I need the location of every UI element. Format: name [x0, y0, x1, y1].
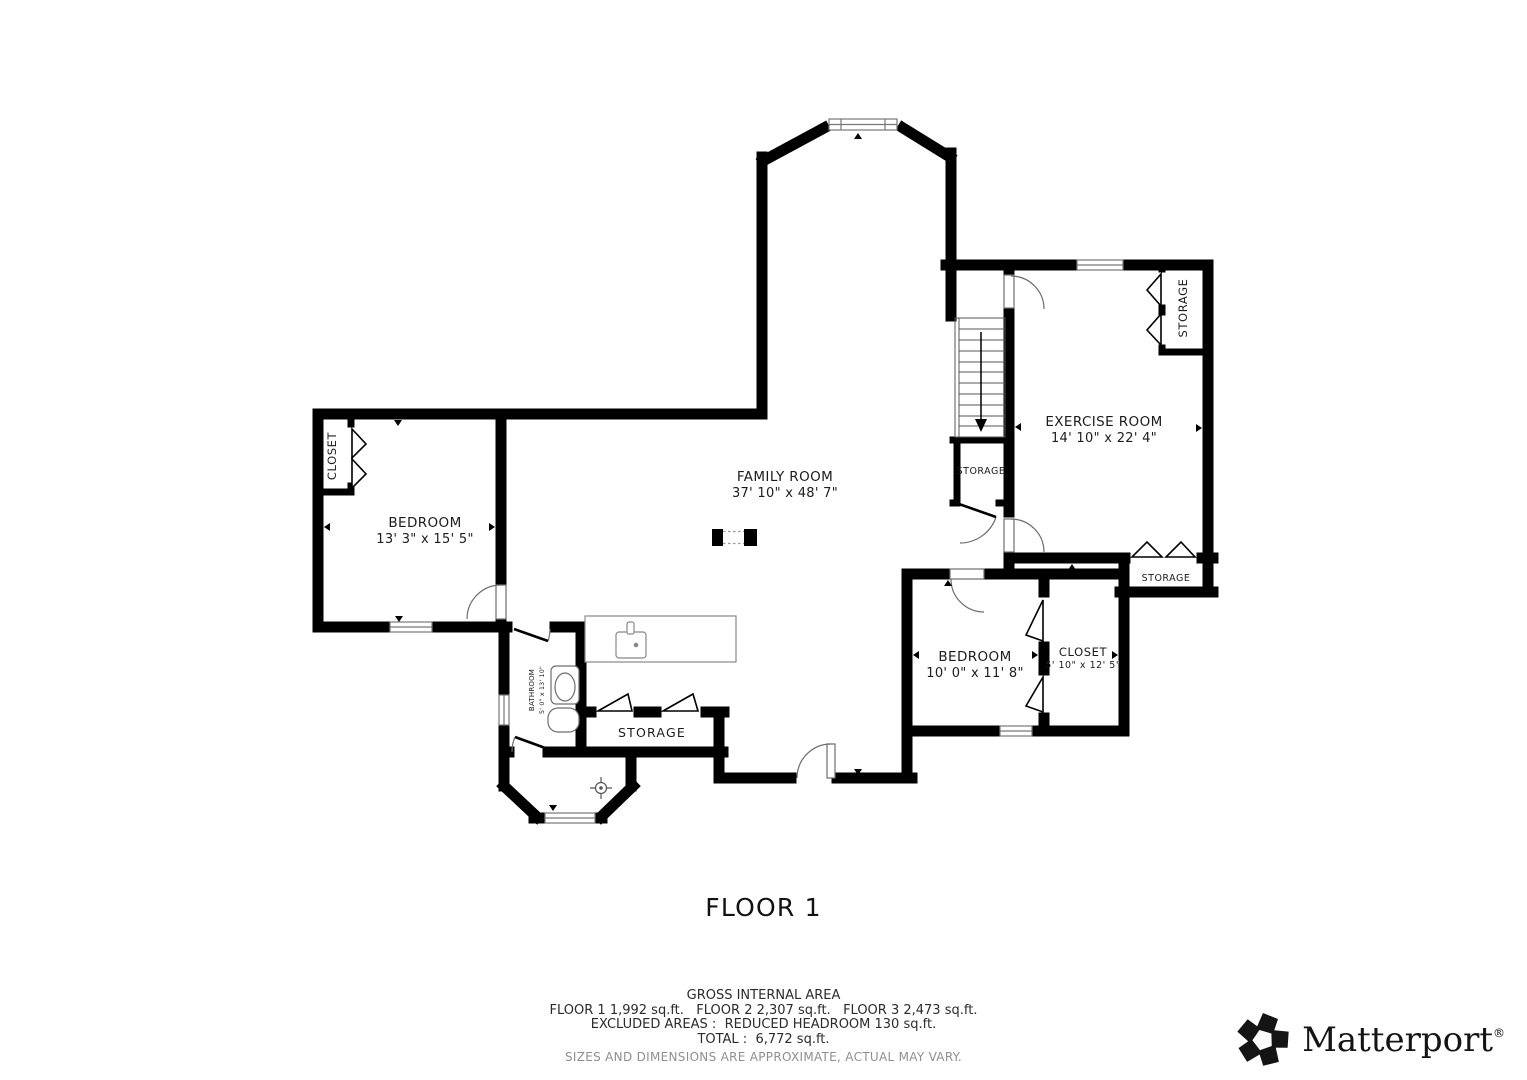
toilet-bowl — [555, 673, 575, 701]
door-leaf-storage-under-stairs — [959, 504, 996, 517]
window-bay-top — [829, 119, 897, 130]
bifold-storage-top-right-1 — [1147, 274, 1161, 306]
matterport-wordmark: Matterport® — [1302, 1023, 1505, 1057]
room-label-closet-right: CLOSET — [1059, 645, 1108, 659]
bifold-closet-right-1 — [1026, 600, 1043, 641]
door-leaf-family-bottom — [827, 744, 835, 778]
door-leaf-bedroom-left — [496, 585, 506, 619]
window-foyer — [545, 813, 595, 823]
room-label-bedroom-right: BEDROOM — [938, 649, 1011, 665]
matterport-logo: Matterport® — [1235, 1012, 1505, 1068]
bifold-storage-top-right-2 — [1147, 314, 1161, 345]
room-label-bedroom-left: BEDROOM — [388, 515, 461, 531]
floor-title: FLOOR 1 — [0, 893, 1527, 922]
bifold-closet-left-2 — [352, 459, 366, 488]
door-leaf-bedroom-right — [950, 569, 984, 579]
kitchen-sink — [616, 632, 646, 658]
window-bathroom — [499, 695, 509, 725]
bath-sink — [548, 708, 579, 732]
room-label-family-room: FAMILY ROOM — [737, 469, 833, 485]
door-leaf-exercise-bottom — [1004, 519, 1014, 552]
room-dims-family-room: 37' 10" x 48' 7" — [732, 486, 838, 501]
door-knob-icon — [590, 777, 612, 799]
door-leaf-exercise-top — [1004, 275, 1014, 308]
room-dims-bathroom: 5' 0" x 13' 10" — [539, 666, 546, 714]
room-label-exercise-room: EXERCISE ROOM — [1045, 414, 1162, 430]
bifold-closet-right-2 — [1026, 677, 1043, 712]
bifold-storage-hall-2 — [663, 694, 698, 711]
window-bedroom-right — [1000, 726, 1032, 736]
door-leaf-bathroom-bottom — [515, 737, 548, 749]
room-label-storage-top-right: STORAGE — [1176, 279, 1190, 338]
window-bedroom-left — [390, 622, 432, 632]
door-leaf-bathroom-top — [514, 629, 548, 641]
sink-drain — [634, 643, 639, 648]
bifold-closet-left-1 — [352, 429, 366, 458]
room-dims-closet-right: 5' 10" x 12' 5" — [1045, 660, 1120, 671]
room-label-closet-left: CLOSET — [325, 431, 339, 480]
room-dims-bedroom-left: 13' 3" x 15' 5" — [376, 532, 473, 547]
room-dims-exercise-room: 14' 10" x 22' 4" — [1051, 431, 1157, 446]
room-label-bathroom: BATHROOM — [528, 669, 536, 711]
room-dims-bedroom-right: 10' 0" x 11' 8" — [926, 666, 1023, 681]
bifold-storage-hall-1 — [598, 694, 632, 711]
kitchen-island — [585, 616, 736, 662]
bifold-storage-mid-right-2 — [1166, 542, 1195, 557]
room-label-storage-mid-right: STORAGE — [1142, 573, 1191, 584]
fireplace — [712, 529, 757, 546]
room-label-storage-under-stairs: STORAGE — [957, 466, 1006, 477]
doors — [352, 274, 1195, 778]
registered-mark: ® — [1493, 1026, 1505, 1040]
room-label-storage-hall: STORAGE — [618, 725, 686, 740]
gross-internal-area-heading: GROSS INTERNAL AREA — [0, 989, 1527, 1004]
window-exercise-room — [1077, 260, 1123, 270]
bifold-storage-mid-right-1 — [1132, 542, 1162, 557]
kitchen-faucet — [627, 622, 634, 634]
matterport-pinwheel-icon — [1235, 1012, 1291, 1068]
staircase — [955, 318, 1005, 437]
